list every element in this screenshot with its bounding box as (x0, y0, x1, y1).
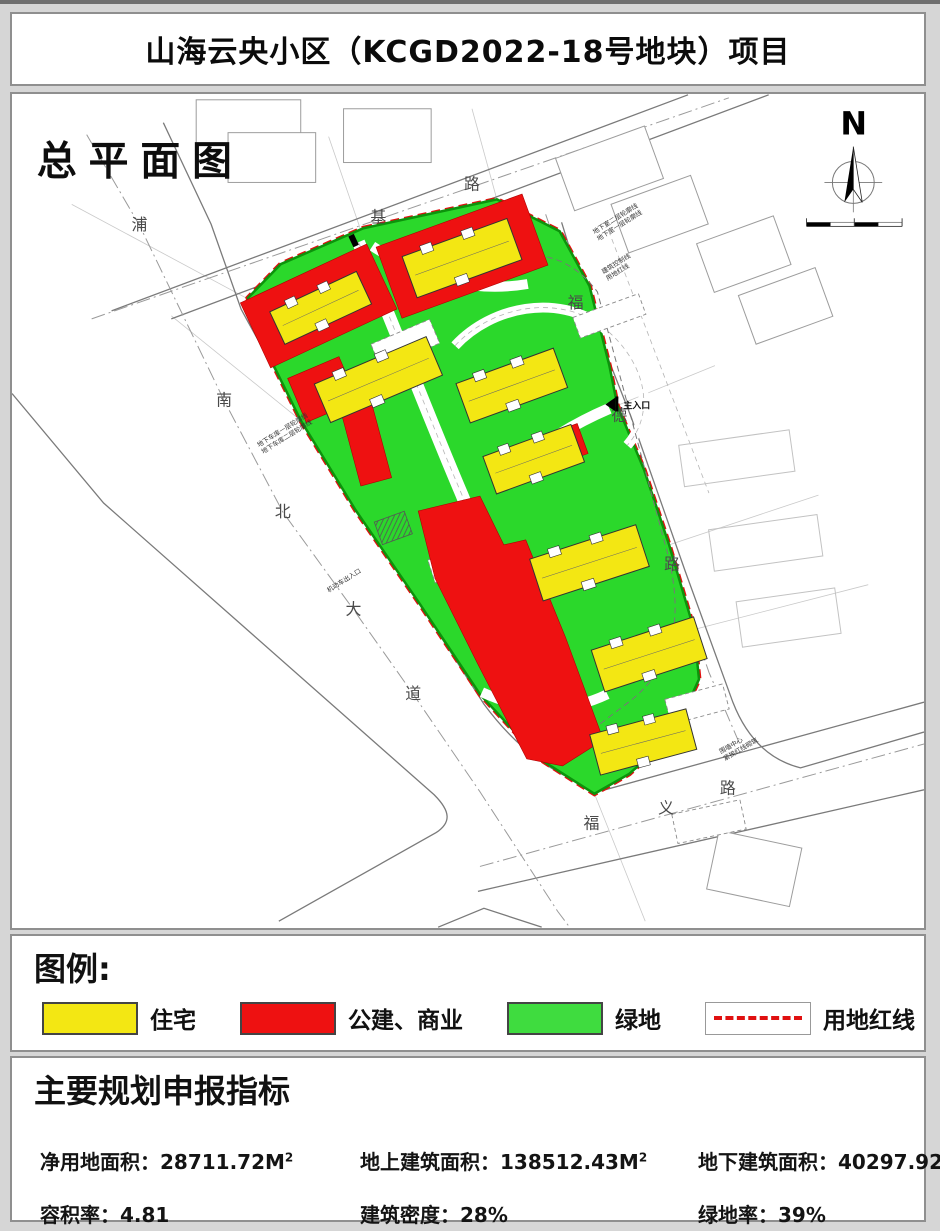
indicator-above-ground-area: 地上建筑面积：138512.43M2 (360, 1146, 698, 1175)
existing-buildings-east (679, 430, 841, 647)
road-name-char: 大 (346, 600, 362, 619)
plan-title: 总平面图 (37, 138, 244, 184)
page: 山海云央小区（KCGD2022-18号地块）项目 (0, 0, 940, 1231)
indicator-underground-area: 地下建筑面积：40297.92M2 (698, 1146, 940, 1175)
title-bar: 山海云央小区（KCGD2022-18号地块）项目 (10, 12, 926, 86)
road-name-char: 北 (275, 502, 291, 521)
north-letter: N (840, 105, 867, 143)
road-name-char: 南 (216, 390, 232, 409)
road-name-char: 浦 (131, 215, 147, 234)
legend-label: 用地红线 (823, 1001, 915, 1035)
legend-item-residential: 住宅 (42, 1001, 196, 1035)
scale-bar (807, 218, 903, 226)
road-name-char: 福 (583, 814, 599, 833)
road-name-char: 福 (568, 293, 584, 312)
residential-swatch (42, 1002, 138, 1035)
indicators-row-2: 容积率：4.81 建筑密度：28% 绿地率：39% (12, 1199, 924, 1228)
legend-item-public-commercial: 公建、商业 (240, 1001, 463, 1035)
road-name-char: 路 (664, 555, 680, 574)
legend-label: 公建、商业 (348, 1001, 463, 1035)
indicator-green-ratio: 绿地率：39% (698, 1199, 924, 1228)
planning-indicators: 主要规划申报指标 净用地面积：28711.72M2 地上建筑面积：138512.… (10, 1056, 926, 1222)
legend-items: 住宅 公建、商业 绿地 用地红线 (12, 990, 924, 1036)
site-plan-drawing: 浦 南 北 大 道 基 路 福 德 路 福 义 路 地下室二层轮廓线 地下室一层… (12, 94, 924, 928)
indicators-heading: 主要规划申报指标 (12, 1058, 924, 1112)
site-plan-map: 浦 南 北 大 道 基 路 福 德 路 福 义 路 地下室二层轮廓线 地下室一层… (10, 92, 926, 930)
legend-heading: 图例: (12, 936, 924, 990)
road-name-char: 道 (405, 684, 421, 703)
land-red-line-swatch (705, 1002, 811, 1035)
legend-label: 绿地 (615, 1001, 661, 1035)
legend-label: 住宅 (150, 1001, 196, 1035)
legend-item-greenspace: 绿地 (507, 1001, 661, 1035)
legend-item-land-red-line: 用地红线 (705, 1001, 915, 1035)
main-entrance-label: 主入口 (623, 399, 650, 411)
road-name-char: 路 (720, 779, 736, 798)
indicator-building-density: 建筑密度：28% (360, 1199, 698, 1228)
public-commercial-swatch (240, 1002, 336, 1035)
indicators-row-1: 净用地面积：28711.72M2 地上建筑面积：138512.43M2 地下建筑… (12, 1146, 924, 1175)
road-name-char: 基 (370, 207, 386, 226)
project-title: 山海云央小区（KCGD2022-18号地块）项目 (145, 27, 790, 71)
north-arrow: N (824, 105, 882, 213)
road-name-char: 义 (658, 799, 674, 818)
annotation: 机动车出入口 (325, 566, 363, 594)
indicator-net-land-area: 净用地面积：28711.72M2 (40, 1146, 360, 1175)
road-name-char: 路 (464, 174, 480, 193)
indicator-plot-ratio: 容积率：4.81 (40, 1199, 360, 1228)
legend: 图例: 住宅 公建、商业 绿地 用地红线 (10, 934, 926, 1052)
greenspace-swatch (507, 1002, 603, 1035)
